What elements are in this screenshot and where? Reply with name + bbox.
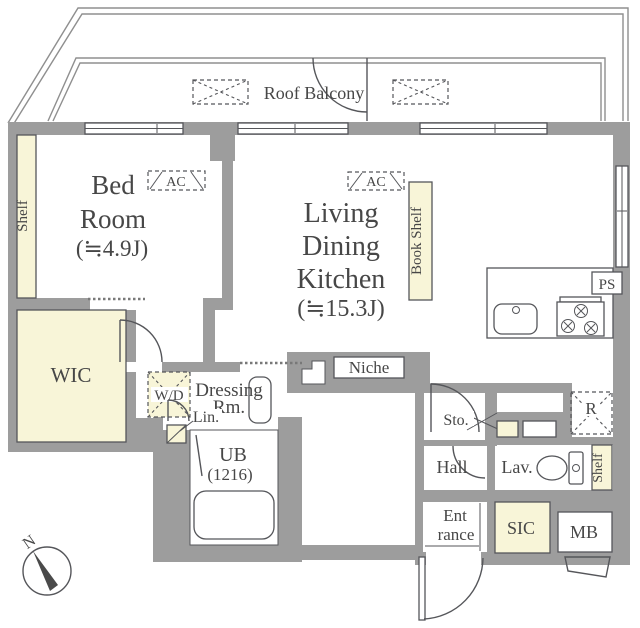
entrance-door-leaf: [419, 557, 425, 620]
roof-balcony-label: Roof Balcony: [264, 83, 365, 103]
bedroom-window: [85, 123, 183, 134]
wall-wic-east-lower: [126, 372, 136, 418]
wall-bed-ldk-partition: [222, 135, 233, 310]
bedroom-size-label: (≒4.9J): [76, 236, 148, 261]
wall-fridge-south: [563, 437, 613, 445]
niche-label: Niche: [349, 358, 390, 377]
wall-corridor-bottom: [290, 545, 424, 560]
balcony-hatch-box-2: [393, 80, 448, 104]
bedroom-ac-label: AC: [166, 175, 185, 190]
sic-label: SIC: [507, 518, 535, 538]
compass-needle: [33, 551, 58, 591]
balcony-parapet-outer: [8, 8, 628, 123]
mb-label: MB: [570, 522, 598, 542]
bedroom-ac-box: AC: [148, 171, 205, 190]
wall-hall-lav-divider: [487, 445, 495, 490]
compass: N: [20, 532, 71, 595]
living-dining-kitchen: AC Book Shelf Living Dining Kitchen (≒15…: [240, 172, 432, 363]
ldk-size-label: (≒15.3J): [297, 296, 384, 322]
ldk-ac-box: AC: [348, 172, 404, 190]
wall-bed-bottom-left: [15, 298, 90, 310]
wall-sto-hall-divider: [424, 440, 497, 446]
wall-passage-south-right: [162, 362, 240, 372]
bathtub: [194, 491, 274, 539]
lav-shelf-label: Shelf: [591, 453, 606, 483]
washer-dryer-space: W/D: [148, 372, 190, 417]
toilet-bowl: [537, 456, 567, 480]
ldk-label-line1: Living: [304, 198, 379, 229]
ldk-ac-label: AC: [366, 175, 385, 190]
kitchen-side-window: [616, 166, 628, 267]
toilet-tank: [569, 452, 583, 484]
wic-label: WIC: [51, 363, 92, 387]
roof-balcony: Roof Balcony: [8, 8, 628, 125]
wall-niche-shelf-1: [497, 421, 518, 437]
wall-left: [8, 135, 17, 452]
ub-label-line2: (1216): [207, 465, 252, 484]
entrance-door-arc: [424, 558, 483, 619]
wall-lav-row-bottom: [415, 490, 613, 502]
kitchen-stove: [557, 297, 604, 336]
refrigerator-label: R: [585, 399, 597, 418]
floorplan-svg: Roof Balcony: [0, 0, 640, 628]
sto-label: Sto.: [443, 412, 468, 429]
lavatory: Lav. Shelf: [501, 445, 612, 490]
balcony-parapet-outer-inner-line: [13, 14, 623, 125]
ldk-label-line2: Dining: [302, 231, 380, 262]
bedroom: Shelf AC Bed Room (≒4.9J): [15, 135, 205, 299]
wall-bed-bottom-right: [203, 298, 233, 310]
bedroom-label-line1: Bed: [91, 170, 135, 200]
balcony-hatch-box-1: [193, 80, 248, 104]
ub-label-line1: UB: [219, 444, 247, 466]
entrance-label-line1: Ent: [443, 506, 467, 525]
ldk-window-2: [420, 123, 547, 134]
lin-label: Lin.: [193, 409, 219, 426]
wall-wic-corner: [126, 418, 155, 442]
ps-label: PS: [599, 277, 616, 293]
wall-sto-east-stub: [485, 390, 497, 445]
entrance-door-opening: [426, 550, 481, 565]
kitchen-sink: [494, 304, 537, 334]
wall-wic-east: [126, 310, 136, 362]
book-shelf-label: Book Shelf: [409, 207, 425, 275]
wall-corridor-east: [415, 383, 424, 548]
floorplan-canvas: Roof Balcony: [0, 0, 640, 628]
shoes-in-closet: SIC: [495, 502, 550, 553]
kitchen: PS R: [487, 268, 622, 434]
ldk-label-line3: Kitchen: [297, 264, 386, 295]
hall-label: Hall: [437, 457, 468, 477]
wall-sic-west: [487, 502, 495, 552]
entrance-label-line2: rance: [438, 525, 475, 544]
wall-niche-shelf-2: [523, 421, 556, 437]
refrigerator-space: R: [571, 392, 612, 434]
ldk-window-1: [238, 123, 348, 134]
bedroom-shelf-label: Shelf: [15, 200, 31, 232]
hall: Hall: [437, 446, 486, 478]
pipe-space: PS: [592, 272, 622, 294]
bedroom-label-line2: Room: [80, 204, 146, 234]
wd-label: W/D: [154, 388, 183, 404]
lav-label: Lav.: [501, 457, 532, 477]
wall-passage-east: [203, 310, 215, 372]
meter-box: MB: [558, 512, 612, 577]
unit-bath: UB (1216): [190, 430, 278, 545]
